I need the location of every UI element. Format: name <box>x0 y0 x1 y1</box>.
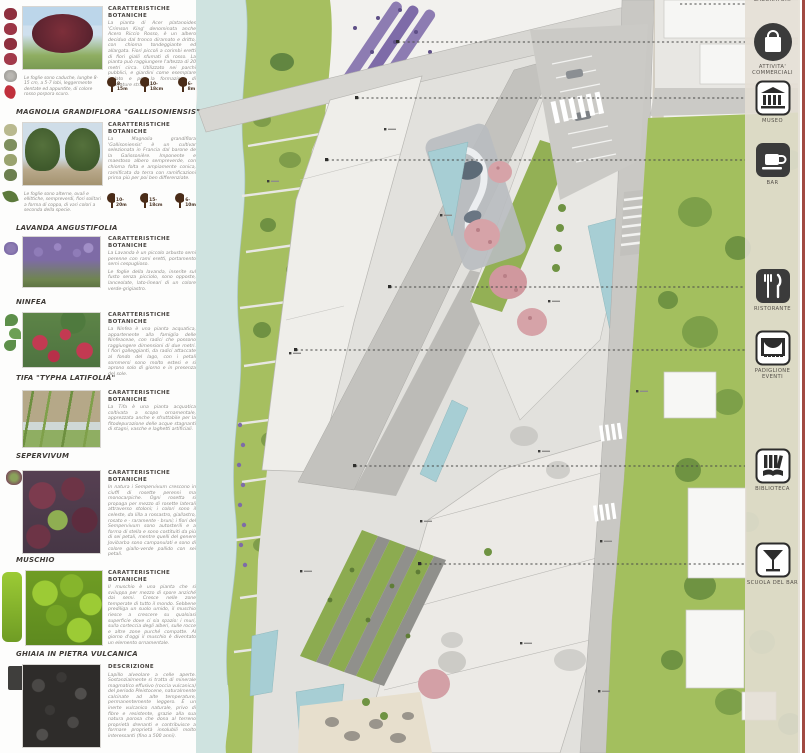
tree-crown-icon <box>174 192 184 208</box>
section-header: CARATTERISTICHE BOTANICHE <box>108 470 196 483</box>
section-body: La Ninfea è una pianta acquatica, appart… <box>108 327 196 377</box>
magnolia-swatch-1 <box>4 124 17 136</box>
tree-height-icon <box>106 76 116 92</box>
acer-swatch-3 <box>4 38 17 50</box>
section-header: CARATTERISTICHE BOTANICHE <box>108 570 196 583</box>
tree-crown-icon <box>177 76 187 92</box>
legend-label: MUSEO <box>746 118 800 124</box>
stage-icon <box>755 330 791 366</box>
lilypad-icon-3 <box>4 340 16 351</box>
section-title: SEPERVIVUM <box>16 452 69 460</box>
acer-swatch-2 <box>4 23 17 35</box>
acer-photo <box>22 6 103 70</box>
section-title: NINFEA <box>16 298 47 306</box>
section-body: La Magnolia grandiflora 'Gallisoniensis'… <box>108 137 196 182</box>
section-title: MUSCHIO <box>16 556 55 564</box>
program-legend: LABORATORI ATTIVITA' COMMERCIALI MUSEO <box>745 0 800 753</box>
legend-item-museo: MUSEO <box>745 80 800 124</box>
acer-swatch-1 <box>4 8 17 20</box>
section-body: Il muschio è una pianta che si sviluppa … <box>108 585 196 647</box>
cocktail-glass-icon <box>755 542 791 578</box>
presentation-board: CARATTERISTICHE BOTANICHE La pianta di A… <box>0 0 810 753</box>
plant-section-acer: CARATTERISTICHE BOTANICHE La pianta di A… <box>0 0 196 106</box>
legend-label: SCUOLA DEL BAR <box>746 580 800 586</box>
magnolia-swatch-2 <box>4 139 17 151</box>
cherry-tree-lower <box>418 669 450 699</box>
legend-item-scuola-del-bar: SCUOLA DEL BAR <box>745 542 800 586</box>
plant-section-magnolia: MAGNOLIA GRANDIFLORA "GALLISONIENSIS" CA… <box>0 108 196 220</box>
botanical-panel: CARATTERISTICHE BOTANICHE La pianta di A… <box>0 0 196 753</box>
coffee-cup-icon <box>755 142 791 178</box>
lilypad-icon-1 <box>5 314 18 326</box>
acer-swatch-4 <box>4 53 17 65</box>
magnolia-photo <box>22 122 103 186</box>
magnolia-caption: Le foglie sono alterne, ovali e ellittic… <box>24 192 102 214</box>
section-title: MAGNOLIA GRANDIFLORA "GALLISONIENSIS" <box>16 108 200 116</box>
section-header: CARATTERISTICHE BOTANICHE <box>108 236 196 249</box>
lavanda-photo <box>22 236 101 288</box>
plant-section-ghiaia: GHIAIA IN PIETRA VULCANICA DESCRIZIONE L… <box>0 650 196 753</box>
legend-item-ristorante: RISTORANTE <box>745 268 800 312</box>
plant-section-ninfea: NINFEA CARATTERISTICHE BOTANICHE La Ninf… <box>0 298 196 372</box>
section-body: Lapillo alveolare a celle aperte. Sostan… <box>108 673 196 740</box>
section-header: CARATTERISTICHE BOTANICHE <box>108 390 196 403</box>
section-body-2: Le foglie della lavanda, inserite sul fu… <box>108 270 196 292</box>
legend-label: RISTORANTE <box>746 306 800 312</box>
magnolia-size-glyphs: 10-20m 15-18cm 6-10m <box>106 192 198 208</box>
legend-item-padiglione-eventi: PADIGLIONE EVENTI <box>745 330 800 380</box>
sempervivum-photo <box>22 470 101 554</box>
tifa-photo <box>22 390 101 448</box>
legend-label: PADIGLIONE EVENTI <box>746 368 800 380</box>
section-header: DESCRIZIONE <box>108 664 196 671</box>
plant-section-lavanda: LAVANDA ANGUSTIFOLIA CARATTERISTICHE BOT… <box>0 224 196 296</box>
section-body: In natura i Sempervivum crescono in ciuf… <box>108 485 196 558</box>
section-body: La Tifa è una pianta acquatica coltivata… <box>108 405 196 433</box>
acer-caption: Le foglie sono caduche, lunghe 8-15 cm, … <box>24 76 102 98</box>
section-header: CARATTERISTICHE BOTANICHE <box>108 312 196 325</box>
tree-trunk-icon <box>139 192 148 208</box>
fork-knife-icon <box>755 268 791 304</box>
legend-label: BAR <box>746 180 800 186</box>
acer-size-glyphs: 8-15m 10-18cm 6-8m <box>106 76 198 92</box>
section-title: GHIAIA IN PIETRA VULCANICA <box>16 650 138 658</box>
green-leaf-icon <box>2 188 19 205</box>
red-leaf-icon <box>2 84 18 100</box>
section-body: La Lavanda è un piccolo arbusto semi per… <box>108 251 196 268</box>
gravel-swatch <box>4 70 17 82</box>
lavanda-swatch <box>4 242 18 255</box>
section-header: CARATTERISTICHE BOTANICHE <box>108 6 196 19</box>
legend-label: ATTIVITA' COMMERCIALI <box>746 64 800 76</box>
moss-strip-thumb <box>2 572 22 642</box>
books-icon <box>755 448 791 484</box>
legend-item-attivita-commerciali: ATTIVITA' COMMERCIALI <box>745 22 800 76</box>
section-title: TIFA "TYPHA LATIFOLIA" <box>16 374 115 382</box>
plant-section-muschio: MUSCHIO CARATTERISTICHE BOTANICHE Il mus… <box>0 556 196 650</box>
rosette-icon <box>6 470 22 485</box>
tree-trunk-icon <box>139 76 149 92</box>
lilypad-icon-2 <box>9 328 21 339</box>
museum-icon <box>755 80 791 116</box>
section-title: LAVANDA ANGUSTIFOLIA <box>16 224 118 232</box>
ghiaia-photo <box>22 664 101 748</box>
magnolia-swatch-3 <box>4 154 17 166</box>
ninfea-photo <box>22 312 101 368</box>
tree-height-icon <box>106 192 115 208</box>
shopping-bag-icon <box>753 22 793 62</box>
legend-item-biblioteca: BIBLIOTECA <box>745 448 800 492</box>
accent-border-line <box>802 0 805 753</box>
plant-section-sempervivum: SEPERVIVUM CARATTERISTICHE BOTANICHE In … <box>0 452 196 556</box>
plant-section-tifa: TIFA "TYPHA LATIFOLIA" CARATTERISTICHE B… <box>0 374 196 452</box>
muschio-photo <box>25 570 103 646</box>
legend-item-bar: BAR <box>745 142 800 186</box>
magnolia-swatch-4 <box>4 169 17 181</box>
legend-top-label: LABORATORI <box>745 0 800 3</box>
legend-label: BIBLIOTECA <box>746 486 800 492</box>
section-header: CARATTERISTICHE BOTANICHE <box>108 122 196 135</box>
